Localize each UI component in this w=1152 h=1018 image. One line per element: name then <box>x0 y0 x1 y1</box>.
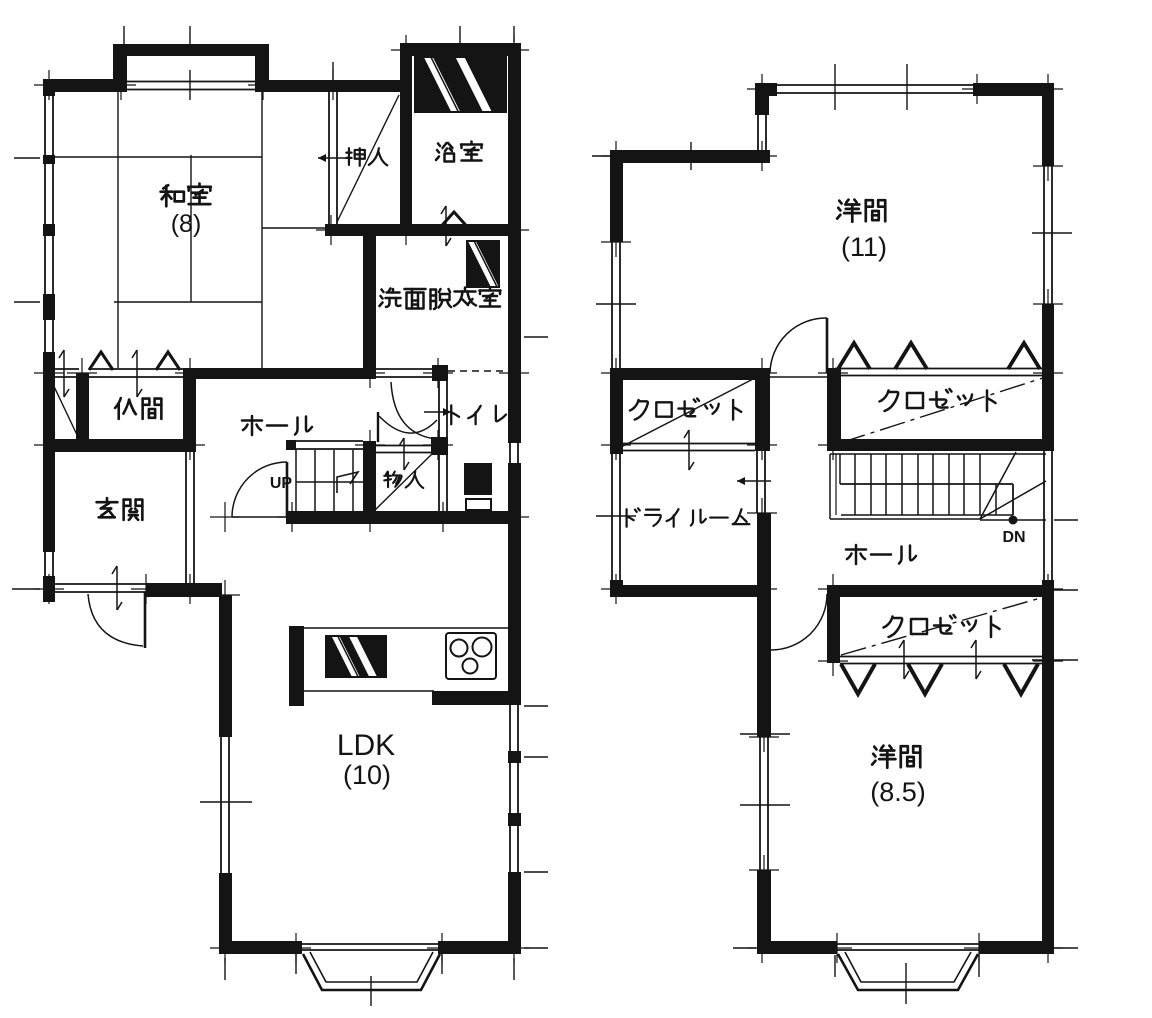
svg-text:UP: UP <box>270 475 293 492</box>
svg-text:DN: DN <box>1002 529 1025 546</box>
svg-text:(11): (11) <box>841 232 887 262</box>
svg-text:(8): (8) <box>171 210 202 238</box>
svg-text:(8.5): (8.5) <box>870 777 926 807</box>
svg-text:LDK: LDK <box>337 729 395 762</box>
svg-text:(10): (10) <box>343 760 391 790</box>
